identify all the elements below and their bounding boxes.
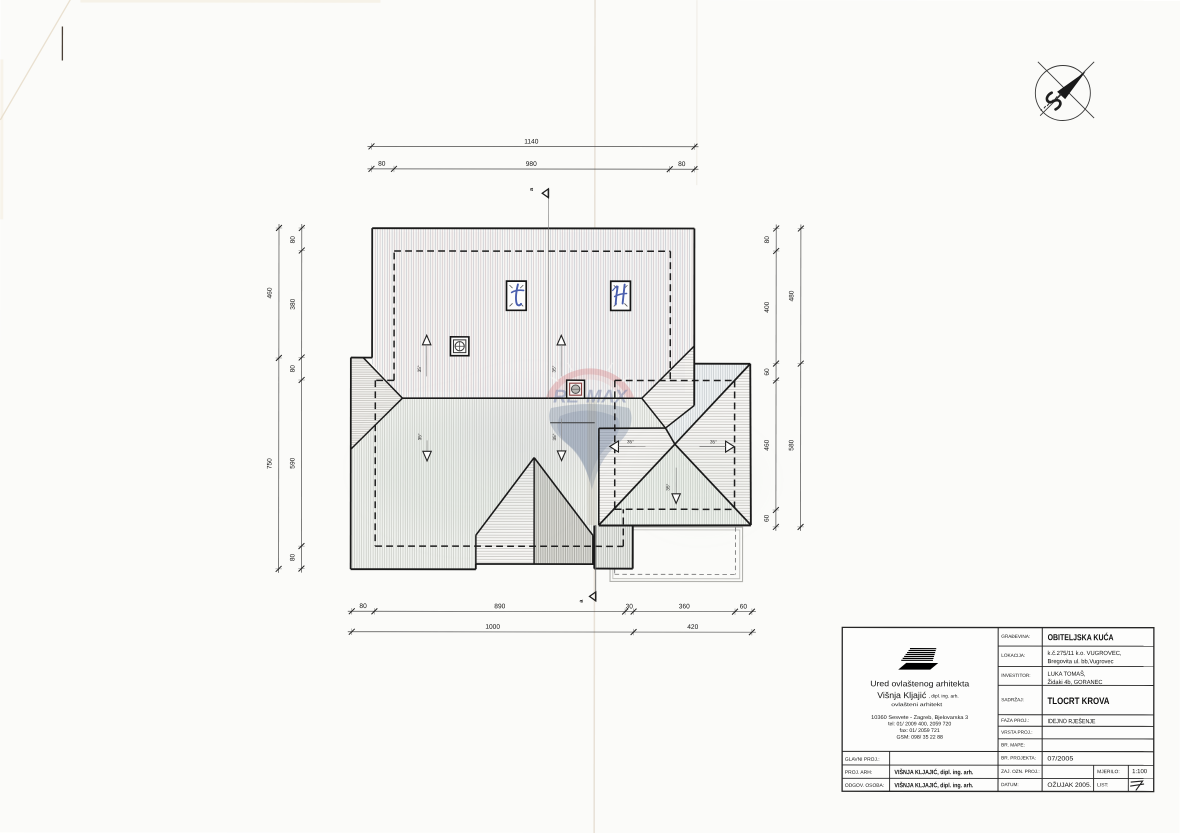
svg-text:GSM: 098/ 35 22 88: GSM: 098/ 35 22 88 bbox=[896, 735, 943, 741]
svg-text:k.č.275/11 k.o. VUGROVEC,: k.č.275/11 k.o. VUGROVEC, bbox=[1048, 650, 1122, 657]
svg-text:ZAJ. OZN. PROJ.:: ZAJ. OZN. PROJ.: bbox=[1001, 769, 1040, 774]
svg-text:tel: 01/ 2009 400, 2059 720: tel: 01/ 2009 400, 2059 720 bbox=[888, 721, 951, 727]
svg-text:60: 60 bbox=[764, 368, 771, 376]
svg-text:400: 400 bbox=[764, 301, 771, 312]
svg-text:MAX: MAX bbox=[586, 385, 629, 406]
svg-text:TLOCRT KROVA: TLOCRT KROVA bbox=[1047, 695, 1109, 706]
svg-text:80: 80 bbox=[289, 553, 296, 561]
svg-text:890: 890 bbox=[494, 603, 505, 610]
svg-text:BR. MAPE:: BR. MAPE: bbox=[1001, 742, 1025, 747]
svg-text:VIŠNJA KLJAJIĆ, dipl. ing. arh: VIŠNJA KLJAJIĆ, dipl. ing. arh. bbox=[894, 768, 973, 776]
svg-text:FAZA PROJ.:: FAZA PROJ.: bbox=[1001, 718, 1029, 723]
svg-text:1140: 1140 bbox=[524, 139, 539, 146]
svg-text:GRAĐEVINA:: GRAĐEVINA: bbox=[1001, 634, 1030, 639]
svg-text:10360 Sesvete - Zagreb, Bjelov: 10360 Sesvete - Zagreb, Bjelovarska 3 bbox=[871, 715, 968, 721]
svg-text:480: 480 bbox=[789, 290, 796, 301]
svg-text:460: 460 bbox=[267, 287, 274, 298]
svg-text:420: 420 bbox=[687, 624, 698, 631]
svg-text:980: 980 bbox=[526, 161, 537, 168]
svg-text:Židaki 4b, GORANEC: Židaki 4b, GORANEC bbox=[1048, 678, 1104, 686]
svg-text:80: 80 bbox=[378, 161, 386, 168]
svg-text:LOKACIJA:: LOKACIJA: bbox=[1001, 653, 1025, 658]
svg-text:LUKA TOMAŠ,: LUKA TOMAŠ, bbox=[1048, 670, 1086, 678]
svg-text:VRSTA PROJ.:: VRSTA PROJ.: bbox=[1001, 730, 1032, 735]
svg-text:MJERILO:: MJERILO: bbox=[1097, 769, 1120, 775]
svg-text:60: 60 bbox=[740, 603, 748, 610]
svg-text:Višnja Kljajić: Višnja Kljajić bbox=[877, 690, 927, 700]
svg-text:LIST:: LIST: bbox=[1097, 782, 1108, 788]
svg-text:BR. PROJEKTA:: BR. PROJEKTA: bbox=[1001, 755, 1036, 760]
svg-text:80: 80 bbox=[359, 603, 367, 610]
svg-text:35°: 35° bbox=[417, 433, 422, 440]
svg-text:460: 460 bbox=[764, 439, 771, 450]
svg-text:ODGOV. OSOBA:: ODGOV. OSOBA: bbox=[845, 783, 884, 789]
svg-text:SADRŽAJ:: SADRŽAJ: bbox=[1001, 696, 1024, 702]
svg-text:IDEJNO RJEŠENJE: IDEJNO RJEŠENJE bbox=[1047, 717, 1095, 725]
svg-text:360: 360 bbox=[679, 603, 690, 610]
svg-text:fax: 01/ 2059 721: fax: 01/ 2059 721 bbox=[900, 728, 940, 734]
svg-text:OŽUJAK 2005.: OŽUJAK 2005. bbox=[1047, 781, 1091, 789]
svg-text:35°: 35° bbox=[710, 439, 717, 444]
svg-text:DATUM:: DATUM: bbox=[1001, 782, 1019, 787]
svg-text:750: 750 bbox=[266, 458, 273, 469]
svg-text:ovlašteni arhitekt: ovlašteni arhitekt bbox=[891, 702, 943, 708]
svg-text:GLAVNI PROJ.:: GLAVNI PROJ.: bbox=[845, 757, 880, 763]
svg-text:60: 60 bbox=[764, 514, 771, 522]
svg-text:80: 80 bbox=[290, 236, 297, 244]
svg-text:590: 590 bbox=[290, 457, 297, 468]
svg-text:, dipl. ing. arh.: , dipl. ing. arh. bbox=[929, 694, 959, 700]
svg-text:35°: 35° bbox=[551, 365, 556, 372]
svg-text:VIŠNJA KLJAJIĆ, dipl. ing. arh: VIŠNJA KLJAJIĆ, dipl. ing. arh. bbox=[894, 781, 973, 789]
svg-text:35°: 35° bbox=[627, 439, 634, 444]
svg-text:1:100: 1:100 bbox=[1132, 768, 1148, 775]
svg-text:INVESTITOR:: INVESTITOR: bbox=[1001, 673, 1030, 678]
svg-text:07/2005: 07/2005 bbox=[1047, 755, 1074, 762]
svg-text:80: 80 bbox=[290, 365, 297, 373]
svg-text:80: 80 bbox=[764, 236, 771, 244]
svg-text:35°: 35° bbox=[417, 365, 422, 372]
svg-text:35°: 35° bbox=[665, 483, 670, 490]
svg-text:1000: 1000 bbox=[485, 624, 500, 631]
svg-text:35°: 35° bbox=[552, 433, 557, 440]
svg-text:80: 80 bbox=[678, 161, 686, 168]
svg-text:OBITELJSKA KUĆA: OBITELJSKA KUĆA bbox=[1048, 632, 1114, 642]
svg-text:380: 380 bbox=[290, 298, 297, 309]
svg-text:PROJ. ARH:: PROJ. ARH: bbox=[845, 770, 872, 776]
svg-text:Bregovita ul. bb,Vugrovec: Bregovita ul. bb,Vugrovec bbox=[1048, 658, 1114, 665]
svg-text:Ured ovlaštenog arhitekta: Ured ovlaštenog arhitekta bbox=[870, 679, 970, 688]
svg-text:580: 580 bbox=[788, 439, 795, 450]
